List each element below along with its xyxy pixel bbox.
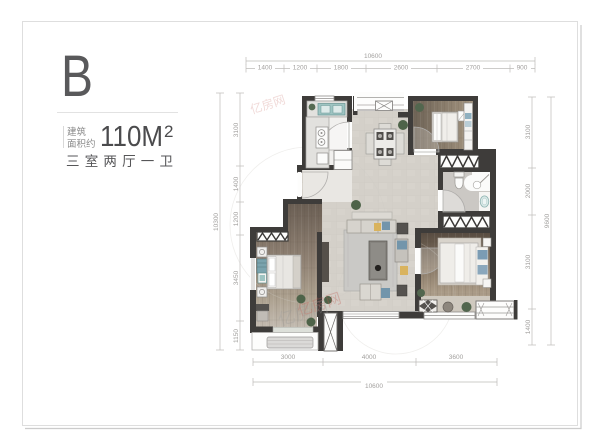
svg-text:4000: 4000: [362, 354, 377, 361]
svg-text:10600: 10600: [364, 53, 382, 60]
svg-text:900: 900: [517, 65, 528, 72]
svg-text:9600: 9600: [544, 213, 551, 228]
svg-text:10300: 10300: [213, 213, 220, 231]
svg-text:1400: 1400: [525, 319, 532, 334]
svg-text:2700: 2700: [466, 65, 481, 72]
svg-text:2: 2: [164, 122, 173, 141]
svg-text:面积约: 面积约: [67, 138, 96, 150]
svg-text:3450: 3450: [233, 270, 240, 285]
svg-text:3100: 3100: [233, 122, 240, 137]
svg-text:110M: 110M: [100, 121, 163, 153]
svg-text:亿房网: 亿房网: [248, 91, 287, 116]
svg-text:1150: 1150: [233, 329, 240, 343]
svg-text:3000: 3000: [281, 354, 296, 361]
svg-text:10600: 10600: [365, 383, 383, 390]
svg-text:2000: 2000: [525, 183, 532, 198]
svg-text:1200: 1200: [233, 211, 240, 226]
svg-text:1800: 1800: [334, 65, 349, 72]
svg-text:3600: 3600: [449, 354, 464, 361]
svg-text:3100: 3100: [525, 254, 532, 269]
svg-text:3100: 3100: [525, 124, 532, 139]
svg-text:2600: 2600: [394, 65, 409, 72]
svg-text:1200: 1200: [293, 65, 308, 72]
svg-text:三室两厅一卫: 三室两厅一卫: [66, 153, 178, 169]
svg-text:B: B: [61, 44, 93, 109]
svg-text:1400: 1400: [258, 65, 273, 72]
svg-text:建筑: 建筑: [67, 126, 87, 138]
